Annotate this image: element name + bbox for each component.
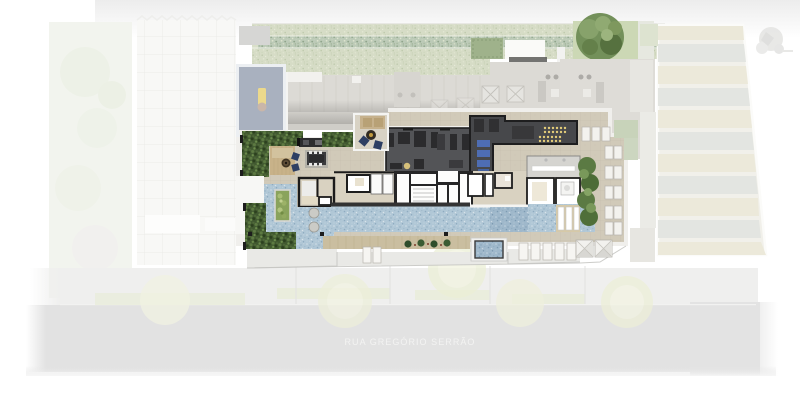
- svg-text:RUA GREGÓRIO SERRÃO: RUA GREGÓRIO SERRÃO: [345, 337, 476, 347]
